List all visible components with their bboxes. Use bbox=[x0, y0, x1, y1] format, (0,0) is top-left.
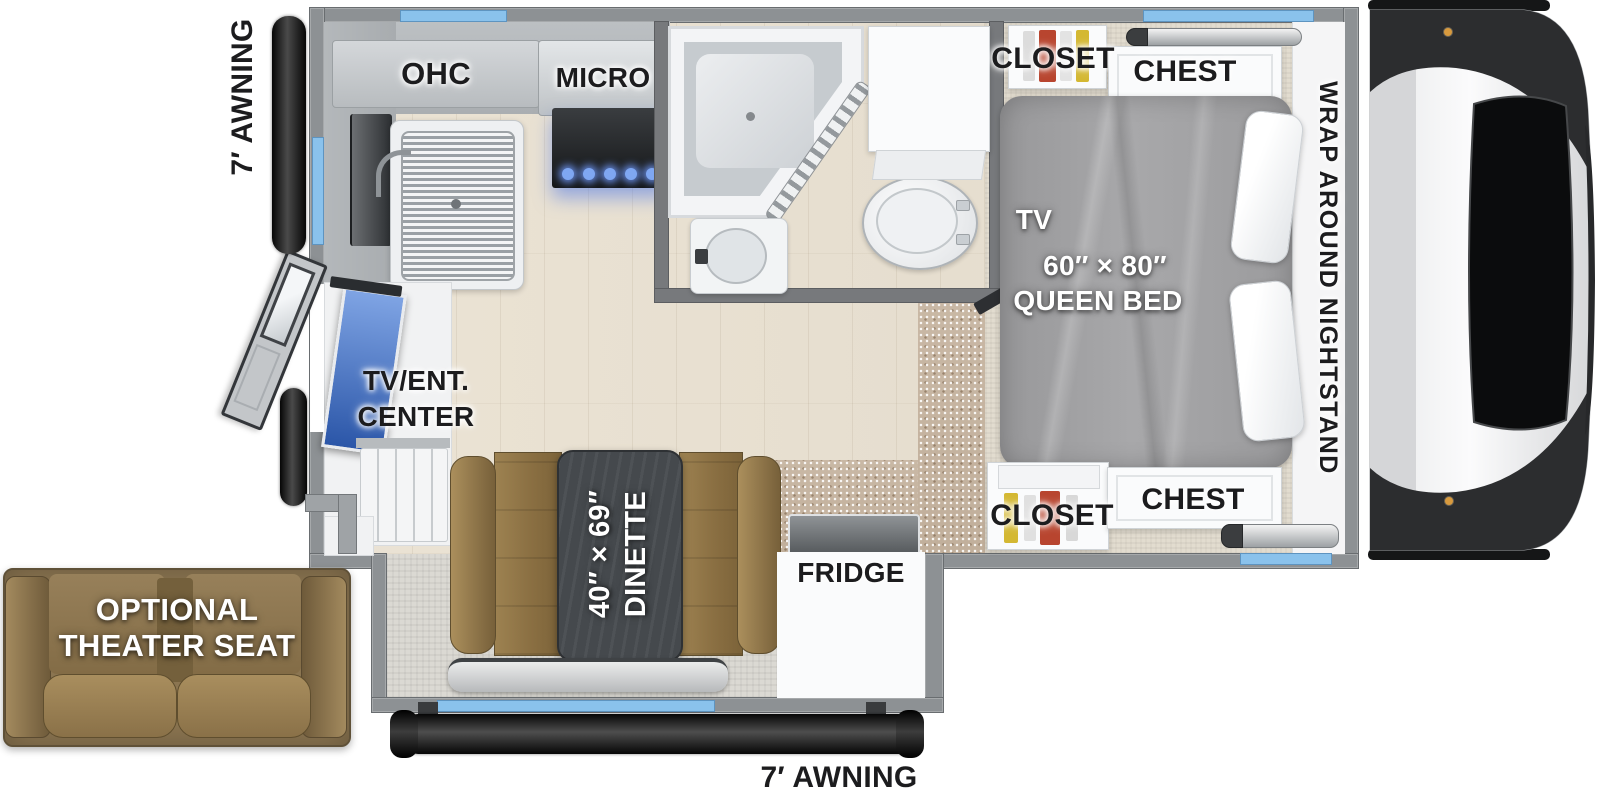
awning-cap-left bbox=[390, 710, 418, 758]
theater-seat: OPTIONAL THEATER SEAT bbox=[3, 568, 351, 747]
dinette-bolster-left bbox=[450, 456, 496, 654]
window-bottom-bedroom bbox=[1240, 553, 1332, 565]
dinette-label: 40″ × 69″ DINETTE bbox=[580, 449, 656, 659]
theater-label-line1: OPTIONAL bbox=[5, 592, 349, 628]
bathroom-sink bbox=[690, 218, 788, 294]
burner-glow bbox=[556, 168, 664, 184]
dinette-name-label: DINETTE bbox=[618, 491, 654, 617]
shower-pan bbox=[696, 54, 814, 168]
sink-bowl bbox=[705, 228, 767, 284]
carpet-runner bbox=[918, 302, 985, 554]
truck-roof-bar-top bbox=[1368, 0, 1550, 11]
shower-drain bbox=[746, 112, 755, 121]
toilet-hinge bbox=[956, 234, 970, 245]
theater-cushion-right bbox=[177, 674, 311, 738]
dinette-bench-right bbox=[679, 452, 743, 656]
door-panel-line bbox=[233, 344, 280, 411]
chest-bottom-label: CHEST bbox=[1138, 484, 1248, 516]
closet-lid bbox=[998, 465, 1100, 489]
fridge-top bbox=[788, 514, 920, 556]
tv-ent-label-line2: CENTER bbox=[350, 400, 482, 434]
marker-light-icon bbox=[1444, 28, 1453, 37]
theater-label-line2: THEATER SEAT bbox=[5, 628, 349, 664]
awning-tube-bottom bbox=[398, 714, 920, 754]
awning-left-label: 7′ AWNING bbox=[225, 7, 261, 187]
door-opening bbox=[310, 284, 324, 432]
truck-windshield bbox=[1469, 96, 1573, 429]
dinette-size-label: 40″ × 69″ bbox=[582, 490, 618, 618]
bed-size-label: 60″ × 80″ bbox=[1028, 250, 1182, 282]
sink-faucet-icon bbox=[695, 249, 708, 264]
sink-drain bbox=[451, 199, 461, 209]
awning-rail-left-lower bbox=[280, 388, 307, 506]
dinette-bench-left bbox=[494, 452, 562, 656]
awning-rail-left bbox=[272, 16, 306, 254]
window-top-kitchen bbox=[400, 10, 507, 22]
window-dinette bbox=[437, 700, 715, 712]
closet-bottom-label: CLOSET bbox=[990, 500, 1114, 532]
chest-top-label: CHEST bbox=[1131, 56, 1239, 88]
bathroom-cabinet bbox=[868, 26, 990, 152]
truck-roof-bar-bottom bbox=[1368, 549, 1550, 560]
ext-wall-right bbox=[925, 554, 943, 712]
fridge-label: FRIDGE bbox=[785, 558, 917, 588]
tv-ent-label-line1: TV/ENT. bbox=[350, 364, 482, 398]
bathroom-shelf bbox=[872, 150, 986, 180]
awning-cap-right bbox=[896, 710, 924, 758]
toilet bbox=[862, 176, 978, 270]
door-window bbox=[260, 262, 316, 347]
window-left-kitchen bbox=[312, 137, 324, 245]
nightstand-label: WRAP AROUND NIGHTSTAND bbox=[1310, 43, 1346, 513]
ext-wall-left bbox=[372, 554, 386, 712]
floorplan-canvas: OHC MICRO TV/ENT. CENTER bbox=[0, 0, 1600, 795]
kitchen-sink bbox=[390, 120, 524, 290]
truck-cab-band bbox=[1370, 12, 1416, 548]
truck-front bbox=[1356, 0, 1596, 560]
wardrobe-ledge bbox=[356, 438, 450, 448]
bathroom-wall-left bbox=[655, 22, 668, 302]
awning-bracket bbox=[338, 494, 357, 554]
range-cooktop bbox=[552, 108, 668, 188]
ohc-cabinet: OHC bbox=[332, 40, 540, 108]
entry-step bbox=[448, 658, 728, 692]
ohc-label: OHC bbox=[333, 41, 539, 107]
wall-right bbox=[1344, 8, 1358, 568]
marker-light-icon bbox=[1445, 497, 1454, 506]
toilet-hinge bbox=[956, 200, 970, 211]
accent-bar-top bbox=[1127, 28, 1302, 46]
window-top-bedroom bbox=[1143, 10, 1314, 22]
toilet-seat bbox=[876, 188, 958, 254]
micro-cabinet: MICRO bbox=[538, 40, 668, 116]
micro-label: MICRO bbox=[539, 41, 667, 115]
bed-name-label: QUEEN BED bbox=[1013, 284, 1183, 318]
tv-label: TV bbox=[1008, 202, 1060, 238]
closet-top-label: CLOSET bbox=[990, 42, 1116, 76]
dinette-bolster-right bbox=[737, 456, 781, 654]
awning-bottom-label: 7′ AWNING bbox=[719, 762, 959, 794]
accent-bar-bottom bbox=[1222, 524, 1339, 548]
theater-cushion-left bbox=[43, 674, 177, 738]
